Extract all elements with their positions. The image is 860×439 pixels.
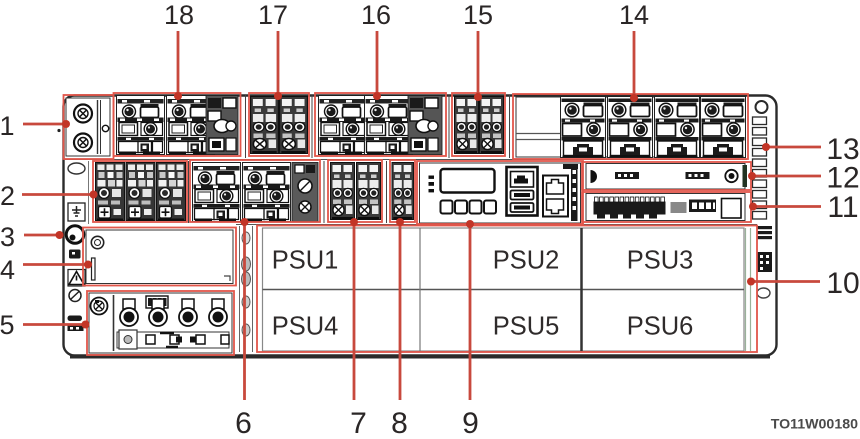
svg-text:5: 5 [0,310,15,340]
svg-text:PSU2: PSU2 [493,247,560,275]
svg-text:8: 8 [391,407,408,439]
svg-text:14: 14 [619,0,649,30]
svg-text:PSU4: PSU4 [272,313,339,341]
svg-text:18: 18 [164,0,194,30]
svg-text:PSU3: PSU3 [627,247,694,275]
svg-text:11: 11 [827,191,858,224]
svg-text:16: 16 [361,0,391,30]
svg-text:17: 17 [258,0,288,30]
svg-text:6: 6 [235,407,252,439]
svg-text:1: 1 [0,111,15,141]
svg-text:3: 3 [0,222,15,252]
svg-text:12: 12 [826,162,859,195]
svg-text:2: 2 [0,181,15,211]
svg-text:4: 4 [0,255,15,285]
svg-text:PSU6: PSU6 [627,313,694,341]
svg-text:7: 7 [350,407,367,439]
svg-text:10: 10 [826,267,859,300]
svg-text:TO11W00180: TO11W00180 [771,417,858,433]
svg-text:9: 9 [462,407,479,439]
svg-text:PSU1: PSU1 [272,247,339,275]
svg-text:PSU5: PSU5 [493,313,560,341]
svg-text:15: 15 [463,0,493,30]
